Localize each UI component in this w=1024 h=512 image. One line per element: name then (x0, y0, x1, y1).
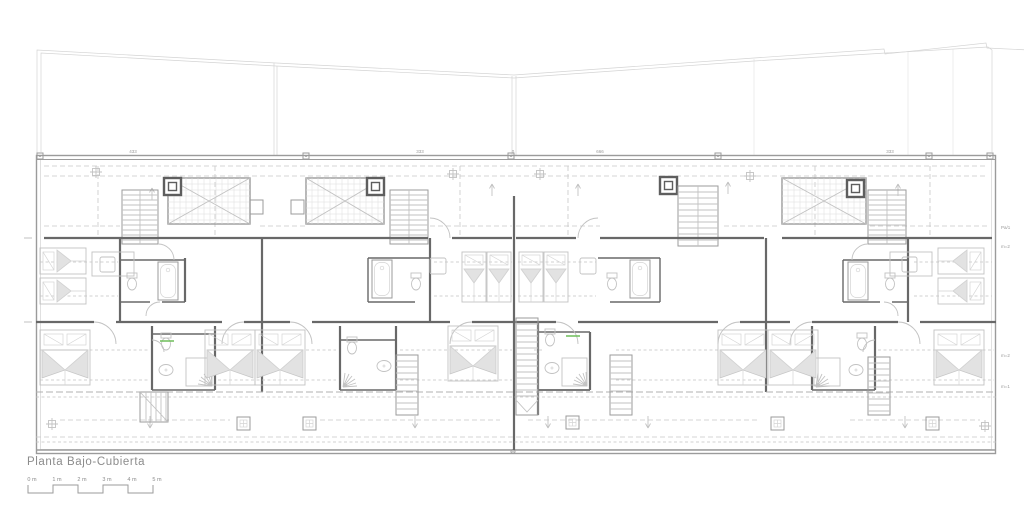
skylight-icon (367, 178, 384, 195)
furniture (92, 252, 932, 276)
central-stair (516, 318, 538, 415)
scale-label: 1 m (52, 477, 62, 483)
skylight-icon (164, 178, 181, 195)
chimney-icon (237, 417, 250, 430)
bathtub-icon (158, 262, 178, 300)
floor-plan-drawing: Planta Bajo-Cubierta 0 m1 m2 m3 m4 m5 m4… (0, 0, 1024, 512)
dimension-labels: 0 m1 m2 m3 m4 m5 m4333330666333Pa/1m=2m=… (27, 149, 1010, 483)
scale-label: 3 m (102, 477, 112, 483)
scale-label: 5 m (152, 477, 162, 483)
stair-core-2 (390, 190, 428, 244)
scale-label: 2 m (77, 477, 87, 483)
double-bed-icon (40, 330, 90, 385)
floor-plan-sheet: Planta Bajo-Cubierta 0 m1 m2 m3 m4 m5 m4… (0, 0, 1024, 512)
stair-core-4 (868, 190, 906, 244)
scale-label: 0 m (27, 477, 37, 483)
site-boundary (37, 43, 1024, 155)
roof-terrace-band (44, 166, 988, 236)
dimension-label: 666 (596, 149, 604, 154)
dimension-label: 333 (416, 149, 424, 154)
stair-core-1 (122, 190, 158, 244)
single-bed-icon (462, 252, 486, 302)
scale-label: 4 m (127, 477, 137, 483)
skylight-icon (660, 177, 677, 194)
lower-terrace-band (36, 416, 996, 442)
tiled-deck-1 (168, 178, 263, 224)
single-bed-icon (40, 248, 86, 274)
margin-annotation: m=1 (1001, 384, 1010, 389)
dimension-label: 333 (886, 149, 894, 154)
toilet-icon (127, 273, 137, 290)
scale-bar (28, 485, 153, 493)
sink-icon (159, 365, 173, 376)
skylight-icon (847, 180, 864, 197)
margin-annotation: Pa/1 (1001, 225, 1011, 230)
margin-annotation: m=2 (1001, 353, 1010, 358)
plan-title: Planta Bajo-Cubierta (27, 456, 145, 468)
dimension-label: 433 (129, 149, 137, 154)
margin-annotation: m=2 (1001, 244, 1010, 249)
